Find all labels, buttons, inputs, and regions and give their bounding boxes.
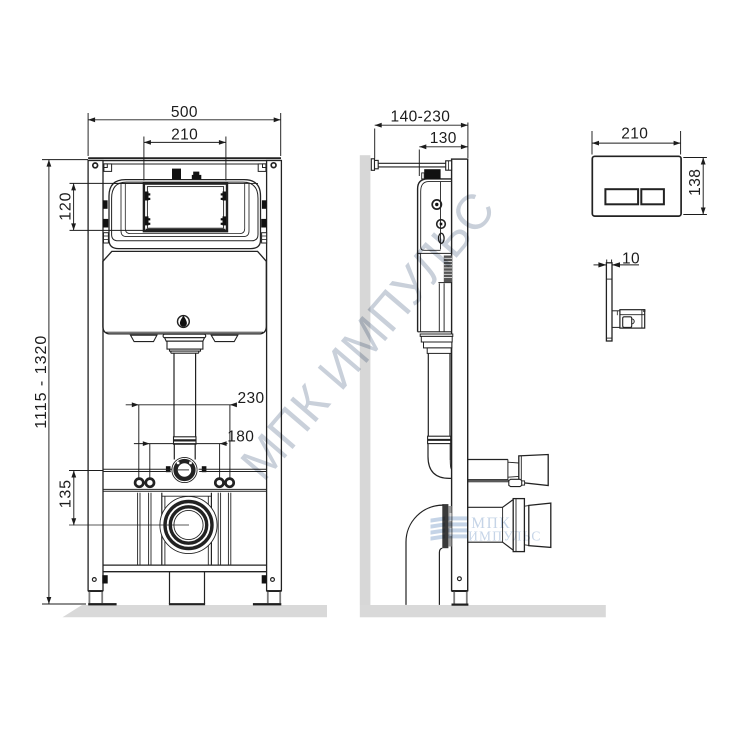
svg-text:120: 120 — [58, 192, 75, 221]
svg-text:10: 10 — [622, 251, 640, 268]
svg-text:138: 138 — [687, 169, 704, 196]
svg-text:230: 230 — [237, 390, 264, 407]
svg-text:ИМПУЛЬС: ИМПУЛЬС — [468, 528, 542, 543]
svg-text:135: 135 — [57, 479, 74, 508]
svg-text:210: 210 — [171, 127, 198, 144]
svg-text:130: 130 — [430, 130, 457, 147]
svg-text:500: 500 — [171, 104, 198, 121]
svg-text:140-230: 140-230 — [391, 108, 451, 125]
svg-text:1115 - 1320: 1115 - 1320 — [33, 335, 50, 429]
svg-text:210: 210 — [621, 126, 648, 143]
